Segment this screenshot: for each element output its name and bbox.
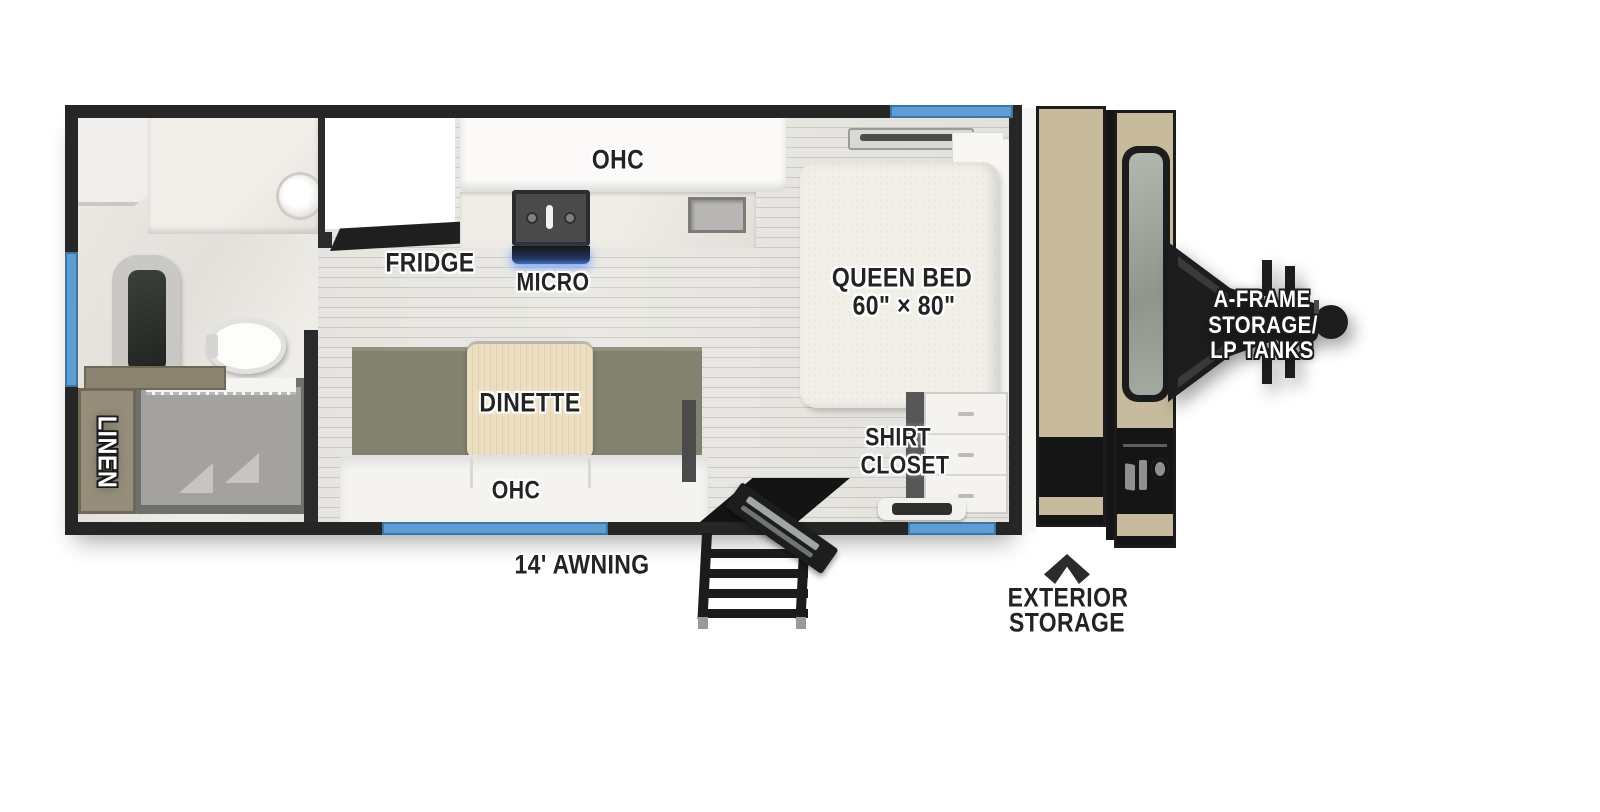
awning-label: 14' AWNING	[514, 550, 649, 581]
bedroom-door-side-window	[908, 522, 996, 535]
linen-shelf	[84, 366, 226, 390]
front-cap-edge	[1022, 108, 1036, 532]
burner	[564, 212, 576, 224]
sofa-seam	[588, 458, 591, 488]
shower-window-glass	[128, 270, 166, 372]
bedroom-offdoor-window	[890, 105, 1013, 118]
dinette-label: DINETTE	[479, 388, 580, 419]
linen-label: LINEN	[92, 416, 123, 488]
kitchen-ohc-label: OHC	[592, 145, 644, 176]
sofa-ohc-label: OHC	[492, 477, 541, 506]
aframe-label-line1: A-FRAME	[1213, 286, 1310, 314]
chevron-up-icon	[1044, 554, 1090, 584]
sofa-seam	[470, 458, 473, 488]
front-cap-bottom-edge	[1117, 536, 1173, 545]
front-cap-panel-near	[1036, 106, 1106, 527]
toilet-hinge	[206, 334, 218, 358]
door-side-window	[382, 522, 608, 535]
floorplan-canvas: LINEN OHC FRIDGE MICRO QUEEN BED 60" × 8…	[0, 0, 1600, 812]
front-cap-logo	[1151, 458, 1169, 480]
cooktop-handle	[546, 205, 553, 229]
front-cap-logo-small-text	[1123, 444, 1167, 447]
front-cap-bottom-edge	[1039, 515, 1103, 524]
rear-window	[65, 252, 78, 387]
shower-pan-detail	[225, 453, 259, 483]
front-cap-logo	[1125, 463, 1135, 491]
fridge	[325, 118, 455, 232]
microwave	[512, 246, 590, 264]
bath-sink	[276, 172, 324, 220]
shower-stall	[132, 378, 310, 514]
shirt-closet-label-line2: CLOSET	[861, 452, 950, 481]
drawer	[926, 394, 1006, 435]
kitchen-sink	[688, 197, 746, 233]
front-cap-stripe-near	[1039, 437, 1103, 497]
exterior-storage-label-line2: STORAGE	[1009, 608, 1125, 639]
entry-step-vent-inner	[892, 503, 952, 515]
ceiling-vent-slot	[860, 134, 962, 141]
micro-label: MICRO	[517, 269, 590, 298]
front-cap-window-glass	[1129, 153, 1163, 395]
front-cap-stripe-far	[1117, 428, 1173, 514]
front-cap-gap	[1106, 110, 1114, 540]
door-post	[682, 400, 696, 482]
front-cap-logo	[1139, 460, 1147, 490]
shirt-closet-label-line1: SHIRT	[865, 424, 931, 453]
aframe-label-line2: STORAGE/	[1208, 312, 1318, 340]
burner	[526, 212, 538, 224]
aframe-label-line3: LP TANKS	[1210, 337, 1314, 365]
queen-bed-label-line2: 60" × 80"	[853, 291, 956, 322]
fridge-label: FRIDGE	[385, 248, 474, 279]
shower-pan-detail	[179, 463, 213, 493]
queen-bed-label-line1: QUEEN BED	[832, 263, 972, 294]
bath-wall-lower	[304, 330, 318, 522]
